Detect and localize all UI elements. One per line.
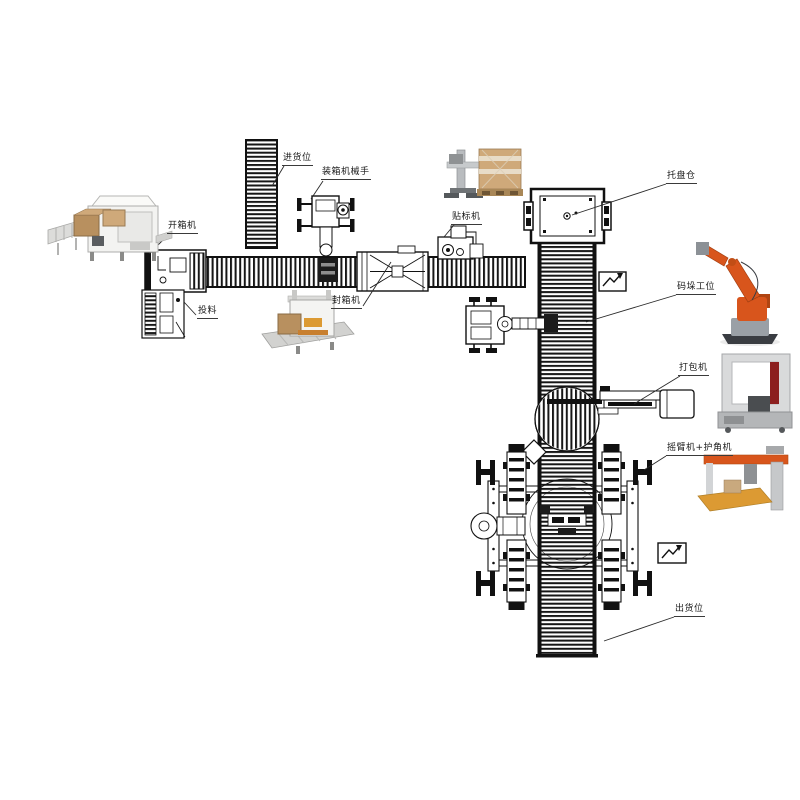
label-palletizing-station: 码垛工位 — [676, 282, 716, 295]
corner-applicator-post — [598, 444, 625, 514]
label-outfeed-position: 出货位 — [674, 604, 705, 617]
corner-applicator-post — [503, 540, 530, 610]
strapping-machine-photo — [718, 354, 792, 433]
label-pallet-magazine: 托盘仓 — [666, 171, 697, 184]
layout-linework — [0, 0, 800, 800]
case-erector-photo — [48, 196, 172, 261]
pallet-stack-photo — [444, 149, 523, 198]
label-case-packing-robot: 装箱机械手 — [321, 167, 371, 180]
flow-zigzag-icon — [658, 543, 686, 563]
labeling-machine-drawing — [438, 226, 483, 259]
case-sealer-drawing — [357, 246, 428, 291]
label-case-sealer: 封箱机 — [331, 296, 362, 309]
pallet-magazine-drawing — [524, 189, 611, 243]
label-case-erector: 开箱机 — [167, 221, 198, 234]
flow-zigzag-icon — [599, 272, 626, 291]
label-strapping-machine: 打包机 — [678, 363, 709, 376]
label-feeding: 投料 — [197, 306, 218, 319]
infeed-conveyor-vertical — [246, 140, 277, 248]
label-arm-wrapper-corner: 摇臂机+护角机 — [666, 443, 733, 456]
corner-applicator-post — [503, 444, 530, 514]
label-infeed-position: 进货位 — [282, 153, 313, 166]
label-labeling-machine: 贴标机 — [451, 212, 482, 225]
corner-applicator-post — [598, 540, 625, 610]
packaging-line-layout-diagram: 进货位 装箱机械手 开箱机 投料 封箱机 贴标机 托盘仓 码垛工位 打包机 摇臂… — [0, 0, 800, 800]
case-erector-drawing — [141, 239, 206, 339]
